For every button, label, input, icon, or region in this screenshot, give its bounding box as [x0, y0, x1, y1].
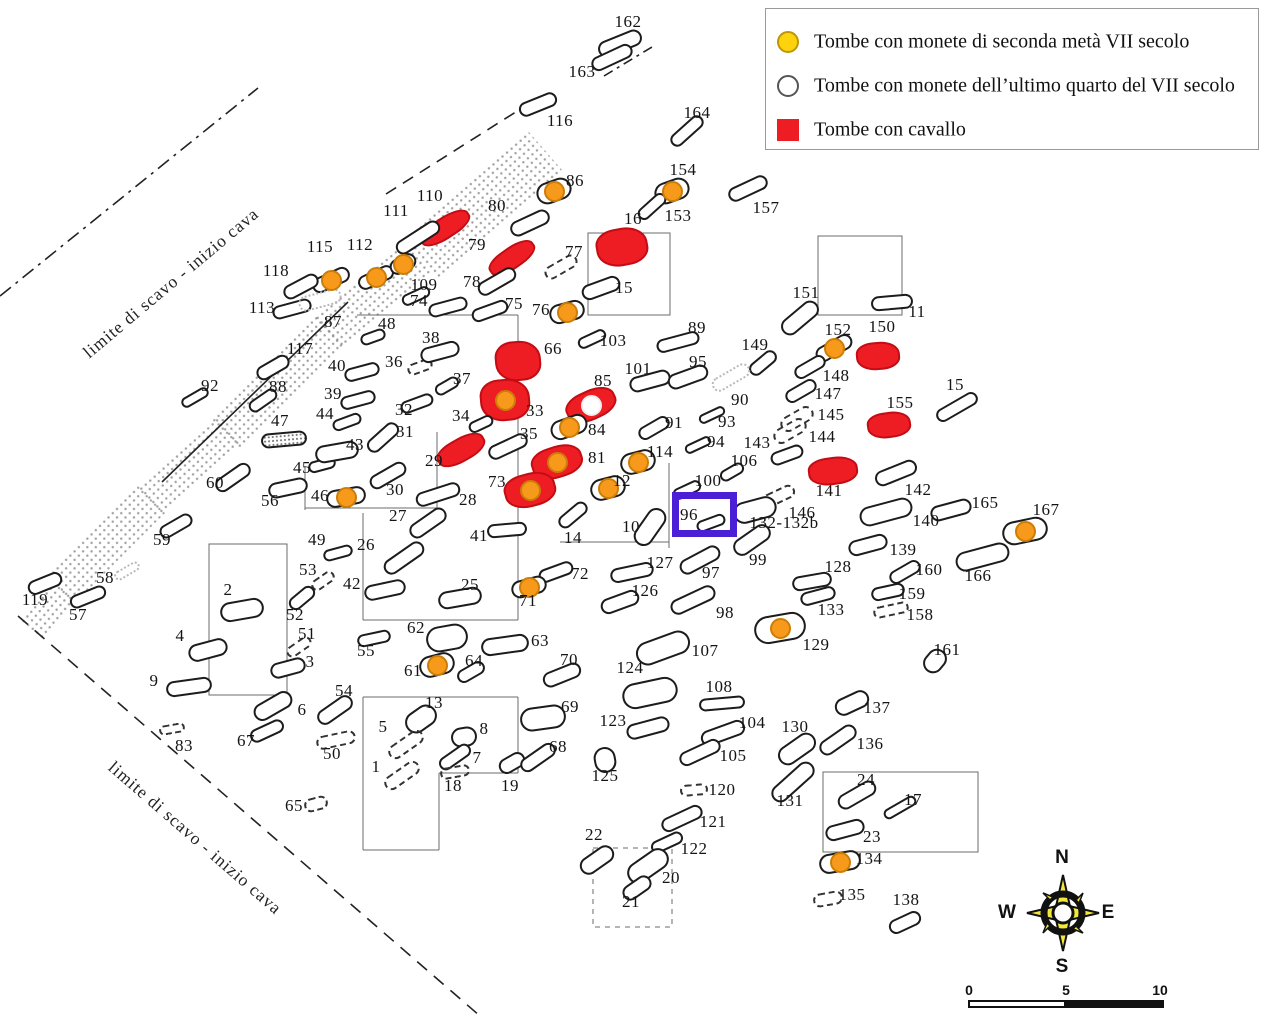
tomb-61-label: 61 [404, 661, 422, 681]
legend: Tombe con monete di seconda metà VII sec… [765, 8, 1259, 150]
tomb-76-dot [557, 302, 578, 323]
tomb-61-dot [427, 655, 448, 676]
tomb-85-label: 85 [594, 371, 612, 391]
tomb-113-label: 113 [249, 298, 275, 318]
tomb-20-label: 20 [662, 868, 680, 888]
tomb-46-label: 46 [311, 486, 329, 506]
compass-north-label: N [1055, 847, 1069, 869]
tomb-66-label: 66 [544, 339, 562, 359]
tomb-83-label: 83 [175, 736, 193, 756]
tomb-78-label: 78 [463, 272, 481, 292]
tomb-110-label: 110 [417, 186, 443, 206]
excavation-plan: 1621631161648615415315780110111797811511… [0, 0, 1263, 1024]
tomb-37-label: 37 [453, 369, 471, 389]
tomb-17-label: 17 [904, 790, 922, 810]
tomb-130-label: 130 [782, 717, 809, 737]
tomb-74-label: 74 [410, 291, 428, 311]
tomb-136-label: 136 [857, 734, 884, 754]
tomb-93-label: 93 [718, 412, 736, 432]
tomb-103-label: 103 [600, 331, 627, 351]
tomb-8-label: 8 [480, 719, 489, 739]
tomb-129-dot [770, 618, 791, 639]
tomb-39-label: 39 [324, 384, 342, 404]
tomb-84-label: 84 [588, 420, 606, 440]
tomb-52-label: 52 [286, 605, 304, 625]
tomb-16-label: 16 [624, 209, 642, 229]
compass-south-label: S [1056, 956, 1069, 978]
tomb-81-label: 81 [588, 448, 606, 468]
tomb-133-label: 133 [818, 600, 845, 620]
tomb-50-label: 50 [323, 744, 341, 764]
tomb-151-label: 151 [793, 283, 820, 303]
tomb-167-dot [1015, 521, 1036, 542]
tomb-107-label: 107 [692, 641, 719, 661]
tomb-124-label: 124 [617, 658, 644, 678]
tomb-34-label: 34 [452, 406, 470, 426]
tomb-120-label: 120 [709, 780, 736, 800]
tomb-134-label: 134 [856, 849, 883, 869]
tomb-67-label: 67 [237, 731, 255, 751]
tomb-161-label: 161 [934, 640, 961, 660]
tomb-35-label: 35 [520, 424, 538, 444]
tomb-97-label: 97 [702, 563, 720, 583]
tomb-114-label: 114 [647, 442, 673, 462]
tomb-100-label: 100 [695, 471, 722, 491]
tomb-43-label: 43 [346, 435, 364, 455]
tomb-84-dot [559, 417, 580, 438]
tomb-160-label: 160 [916, 560, 943, 580]
tomb-129-label: 129 [803, 635, 830, 655]
tomb-167-label: 167 [1033, 500, 1060, 520]
tomb-53-label: 53 [299, 560, 317, 580]
tomb-11 [870, 293, 913, 312]
tomb-76-label: 76 [532, 300, 550, 320]
tomb-98-label: 98 [716, 603, 734, 623]
tomb-56-label: 56 [261, 491, 279, 511]
tomb-138-label: 138 [893, 890, 920, 910]
tomb-137-label: 137 [864, 698, 891, 718]
tomb-73-dot [520, 480, 541, 501]
tomb-159-label: 159 [899, 584, 926, 604]
tomb-152-dot [824, 338, 845, 359]
tomb-139-label: 139 [890, 540, 917, 560]
tomb-122-label: 122 [681, 839, 708, 859]
tomb-51-label: 51 [298, 624, 316, 644]
scale-tick-5: 5 [1062, 982, 1070, 998]
tomb-132-132b-label: 132-132b [749, 513, 818, 533]
white-circle-icon [777, 75, 799, 97]
tomb-6-label: 6 [298, 700, 307, 720]
tomb-2-label: 2 [224, 580, 233, 600]
tomb-166-label: 166 [965, 566, 992, 586]
scale-bar-segment-open [968, 1000, 1066, 1008]
tomb-33-label: 33 [526, 401, 544, 421]
legend-item-red: Tombe con cavallo [766, 118, 1258, 142]
yellow-circle-icon [777, 31, 799, 53]
tomb-75-label: 75 [505, 294, 523, 314]
tomb-121-label: 121 [700, 812, 727, 832]
tomb-28-label: 28 [459, 490, 477, 510]
tomb-145-label: 145 [818, 405, 845, 425]
tomb-91-label: 91 [665, 413, 683, 433]
tomb-134-dot [830, 852, 851, 873]
tomb-101-label: 101 [625, 359, 652, 379]
tomb-65-label: 65 [285, 796, 303, 816]
legend-item-white: Tombe con monete dell’ultimo quarto del … [766, 74, 1258, 98]
tomb-21-label: 21 [622, 892, 640, 912]
tomb-125-label: 125 [592, 766, 619, 786]
tomb-89-label: 89 [688, 318, 706, 338]
tomb-80-label: 80 [488, 196, 506, 216]
tomb-71-label: 71 [519, 591, 537, 611]
legend-item-yellow: Tombe con monete di seconda metà VII sec… [766, 30, 1258, 54]
tomb-148-label: 148 [823, 366, 850, 386]
tomb-86-label: 86 [566, 171, 584, 191]
compass-west-label: W [998, 902, 1016, 924]
tomb-24-label: 24 [857, 770, 875, 790]
tomb-90-label: 90 [731, 390, 749, 410]
tomb-36-label: 36 [385, 352, 403, 372]
tomb-155-label: 155 [887, 393, 914, 413]
tomb-46-dot [336, 487, 357, 508]
tomb-3-label: 3 [306, 652, 315, 672]
tomb-33-dot [495, 390, 516, 411]
scale-tick-10: 10 [1152, 982, 1168, 998]
tomb-9-label: 9 [150, 671, 159, 691]
tomb-58-label: 58 [96, 568, 114, 588]
tomb-31-label: 31 [396, 422, 414, 442]
tomb-118-label: 118 [263, 261, 289, 281]
tomb-11-label: 11 [908, 302, 925, 322]
tomb-59-label: 59 [153, 530, 171, 550]
tomb-163-label: 163 [569, 62, 596, 82]
highlight-box-tomb-96 [672, 492, 737, 537]
tomb-94-label: 94 [707, 432, 725, 452]
tomb-57-label: 57 [69, 605, 87, 625]
scale-bar: 0 5 10 [966, 982, 1166, 1014]
tomb-153-label: 153 [665, 206, 692, 226]
tomb-147-label: 147 [815, 384, 842, 404]
tomb-135-label: 135 [839, 885, 866, 905]
tomb-70-label: 70 [560, 650, 578, 670]
tomb-41-label: 41 [470, 526, 488, 546]
tomb-48-label: 48 [378, 314, 396, 334]
tomb-77-label: 77 [565, 242, 583, 262]
tomb-140-label: 140 [913, 511, 940, 531]
compass-east-label: E [1102, 902, 1115, 924]
tomb-44-label: 44 [316, 404, 334, 424]
tomb-62-label: 62 [407, 618, 425, 638]
tomb-55-label: 55 [357, 641, 375, 661]
tomb-30-label: 30 [386, 480, 404, 500]
tomb-165-label: 165 [972, 493, 999, 513]
tomb-14-label: 14 [564, 528, 582, 548]
tomb-10-label: 10 [622, 517, 640, 537]
tomb-27-label: 27 [389, 506, 407, 526]
tomb-152-label: 152 [825, 320, 852, 340]
tomb-69-label: 69 [561, 697, 579, 717]
scale-bar-segment-filled [1066, 1000, 1164, 1008]
tomb-115-dot [321, 270, 342, 291]
tomb-112-label: 112 [347, 235, 373, 255]
tomb-117-label: 117 [287, 339, 313, 359]
tomb-5-label: 5 [379, 717, 388, 737]
tomb-162-label: 162 [615, 12, 642, 32]
tomb-149-label: 149 [742, 335, 769, 355]
tomb-60-label: 60 [206, 473, 224, 493]
tomb-85-dot [581, 395, 602, 416]
tomb-111-label: 111 [383, 201, 409, 221]
tomb-49-label: 49 [308, 530, 326, 550]
tomb-68-label: 68 [549, 737, 567, 757]
red-square-icon [777, 119, 799, 141]
tomb-86-dot [544, 181, 565, 202]
tomb-127-label: 127 [647, 553, 674, 573]
tomb-63-label: 63 [531, 631, 549, 651]
tomb-29-label: 29 [425, 451, 443, 471]
tomb-81-dot [547, 452, 568, 473]
tomb-119-label: 119 [22, 590, 48, 610]
legend-label: Tombe con monete dell’ultimo quarto del … [814, 75, 1235, 98]
tomb-164-label: 164 [684, 103, 711, 123]
tomb-128-label: 128 [825, 557, 852, 577]
tomb-54-label: 54 [335, 681, 353, 701]
tomb-158-label: 158 [907, 605, 934, 625]
tomb-143-label: 143 [744, 433, 771, 453]
tomb-88-label: 88 [269, 377, 287, 397]
tomb-87-label: 87 [324, 312, 342, 332]
tomb-23-label: 23 [863, 827, 881, 847]
tomb-150-label: 150 [869, 317, 896, 337]
tomb-73-label: 73 [488, 472, 506, 492]
tomb-154-label: 154 [670, 160, 697, 180]
tomb-25-label: 25 [461, 575, 479, 595]
tomb-42-label: 42 [343, 574, 361, 594]
tomb-38-label: 38 [422, 328, 440, 348]
tomb-18-label: 18 [444, 776, 462, 796]
tomb-unlabeled-dot [393, 254, 414, 275]
tomb-104-label: 104 [739, 713, 766, 733]
tomb-92-label: 92 [201, 376, 219, 396]
tomb-64-label: 64 [465, 651, 483, 671]
tomb-4-label: 4 [176, 626, 185, 646]
tomb-26-label: 26 [357, 535, 375, 555]
scale-tick-0: 0 [965, 982, 973, 998]
tomb-22-label: 22 [585, 825, 603, 845]
tomb-154-dot [662, 181, 683, 202]
tomb-19-label: 19 [501, 776, 519, 796]
tomb-144-label: 144 [809, 427, 836, 447]
tomb-95-label: 95 [689, 352, 707, 372]
tomb-126-label: 126 [632, 581, 659, 601]
legend-label: Tombe con cavallo [814, 119, 966, 142]
tomb-157-label: 157 [753, 198, 780, 218]
tomb-47-label: 47 [271, 411, 289, 431]
tomb-116-label: 116 [547, 111, 573, 131]
tomb-45-label: 45 [293, 458, 311, 478]
tomb-32-label: 32 [395, 400, 413, 420]
tomb-7-label: 7 [473, 748, 482, 768]
tomb-1-label: 1 [372, 757, 381, 777]
tomb-106-label: 106 [731, 451, 758, 471]
tomb-141-label: 141 [816, 481, 843, 501]
tomb-108-label: 108 [706, 677, 733, 697]
tomb-12-label: 12 [613, 471, 631, 491]
tomb-131-label: 131 [777, 791, 804, 811]
tomb-105-label: 105 [720, 746, 747, 766]
tomb-115-label: 115 [307, 237, 333, 257]
tomb-15-label: 15 [946, 375, 964, 395]
tomb-114-dot [628, 452, 649, 473]
tomb-72-label: 72 [571, 564, 589, 584]
tomb-13-label: 13 [425, 693, 443, 713]
tomb-79-label: 79 [468, 235, 486, 255]
tomb-123-label: 123 [600, 711, 627, 731]
legend-label: Tombe con monete di seconda metà VII sec… [814, 31, 1189, 54]
tomb-99-label: 99 [749, 550, 767, 570]
tomb-112-dot [366, 267, 387, 288]
tomb-15-label: 15 [615, 278, 633, 298]
tomb-142-label: 142 [905, 480, 932, 500]
tomb-40-label: 40 [328, 356, 346, 376]
